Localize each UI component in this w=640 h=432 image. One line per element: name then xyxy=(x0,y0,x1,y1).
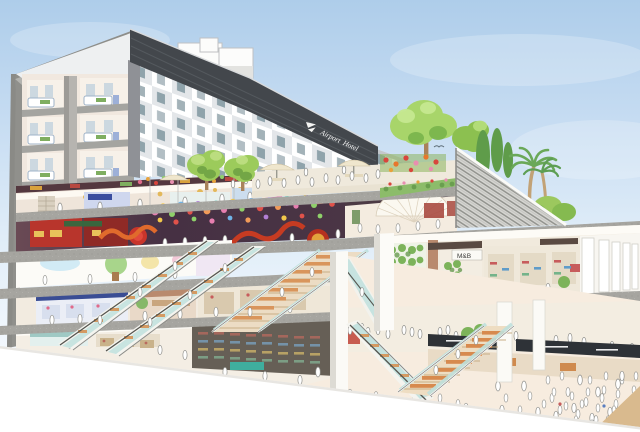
svg-text:M&B: M&B xyxy=(457,253,471,260)
